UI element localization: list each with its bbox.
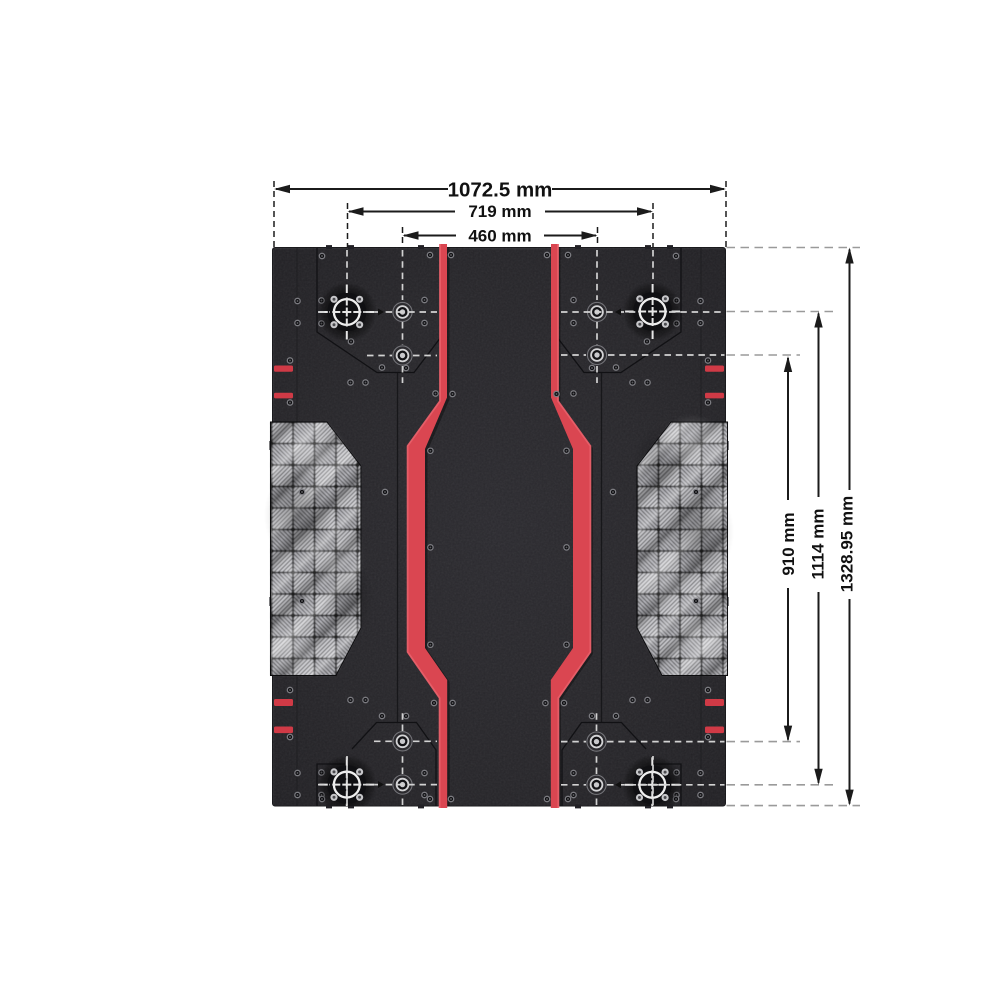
svg-text:719 mm: 719 mm [468,202,531,221]
svg-text:1328.95 mm: 1328.95 mm [838,496,857,592]
svg-text:1114 mm: 1114 mm [809,509,828,580]
svg-text:1072.5 mm: 1072.5 mm [448,179,553,202]
svg-text:910 mm: 910 mm [779,512,798,575]
svg-text:460 mm: 460 mm [468,227,531,246]
